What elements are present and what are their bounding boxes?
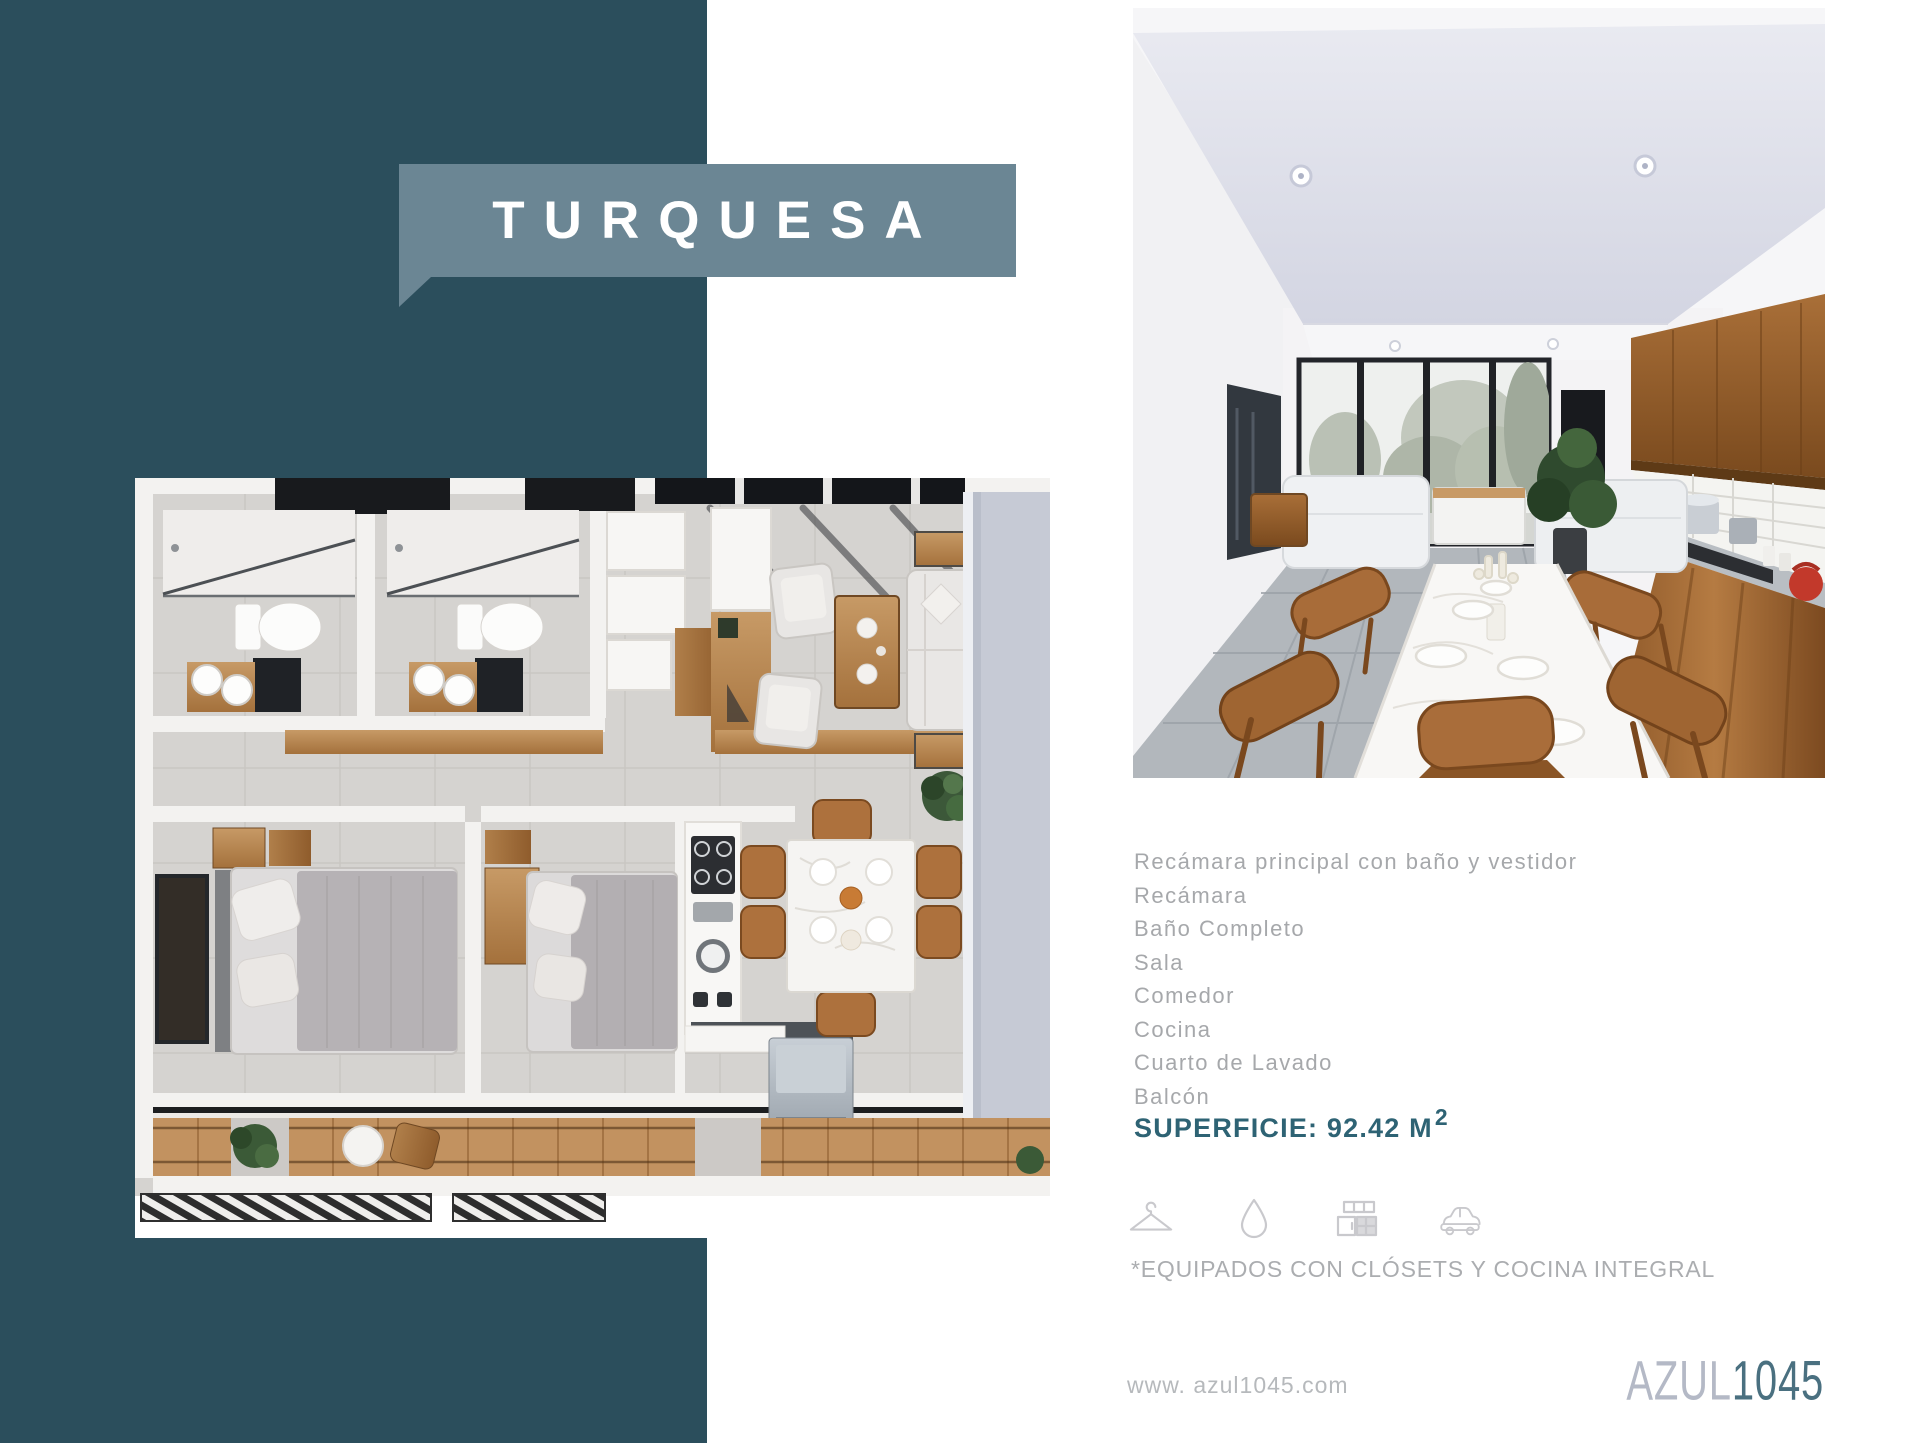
- room-item: Baño Completo: [1134, 912, 1577, 946]
- surface-area-label: SUPERFICIE: 92.42 M2: [1134, 1106, 1447, 1144]
- page-title: TURQUESA: [492, 190, 941, 251]
- title-banner: TURQUESA: [399, 164, 1016, 277]
- equipped-note: *EQUIPADOS CON CLÓSETS Y COCINA INTEGRAL: [1131, 1256, 1715, 1283]
- kitchen-icon: [1334, 1196, 1380, 1242]
- floorplan-image: [135, 478, 1050, 1238]
- logo-1045: 1045: [1732, 1349, 1824, 1412]
- brochure-page: TURQUESA: [0, 0, 1920, 1443]
- room-item: Cuarto de Lavado: [1134, 1046, 1577, 1080]
- water-drop-icon: [1231, 1196, 1277, 1242]
- azul1045-logo: AZUL1045: [1626, 1348, 1824, 1413]
- room-item: Comedor: [1134, 979, 1577, 1013]
- hanger-icon: [1128, 1196, 1174, 1242]
- banner-tail: [399, 277, 431, 307]
- room-item: Recámara: [1134, 879, 1577, 913]
- room-item: Sala: [1134, 946, 1577, 980]
- amenity-icons-row: [1128, 1196, 1483, 1242]
- superscript-2: 2: [1435, 1104, 1449, 1130]
- website-link[interactable]: www. azul1045.com: [1127, 1372, 1349, 1399]
- room-list: Recámara principal con baño y vestidor R…: [1134, 845, 1577, 1113]
- logo-azul: AZUL: [1626, 1349, 1731, 1412]
- car-icon: [1437, 1196, 1483, 1242]
- room-item: Recámara principal con baño y vestidor: [1134, 845, 1577, 879]
- interior-photo: [1133, 8, 1825, 778]
- room-item: Cocina: [1134, 1013, 1577, 1047]
